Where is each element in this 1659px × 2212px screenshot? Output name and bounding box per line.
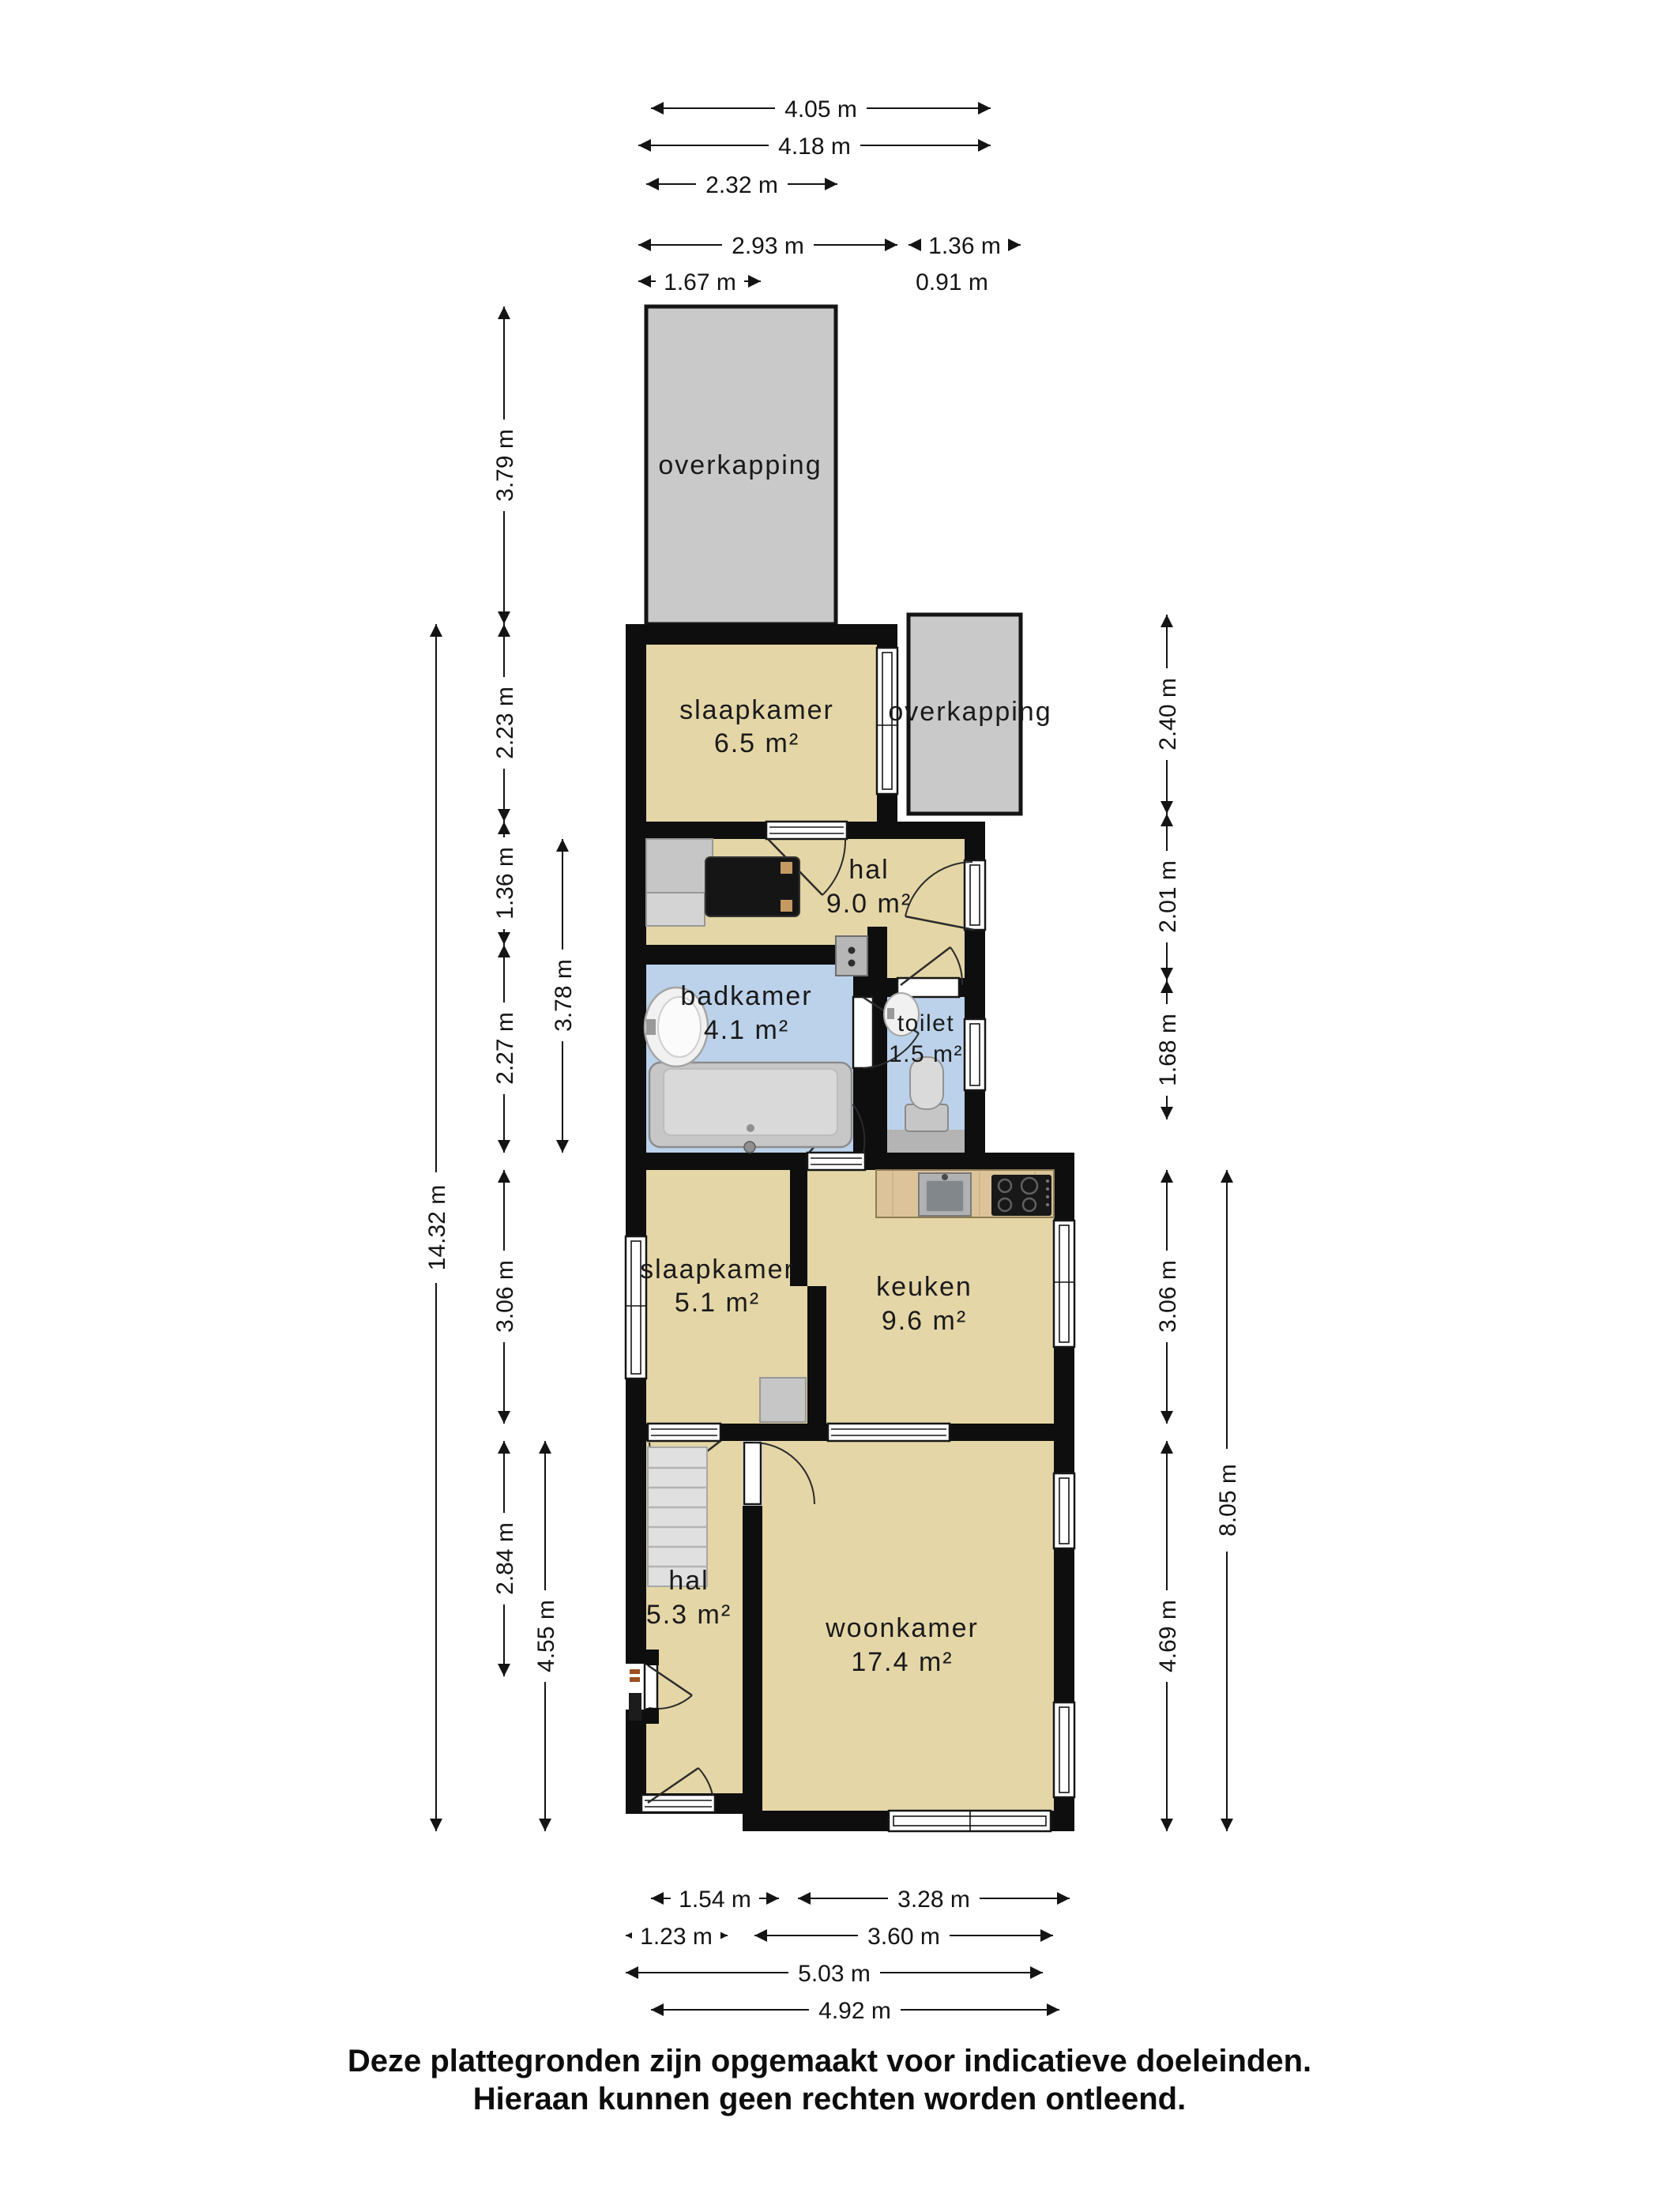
label-woonkamer-name: woonkamer [825,1613,979,1643]
svg-text:4.69 m: 4.69 m [1155,1600,1181,1672]
svg-text:3.28 m: 3.28 m [897,1887,970,1913]
dimensions-right: 2.40 m 2.01 m 1.68 m 3.06 m 8.05 m 4.69 … [1151,615,1243,1831]
floorplan-drawing: overkapping [0,0,1659,2212]
svg-text:4.05 m: 4.05 m [784,96,857,122]
window-woonkamer-right-2 [1054,1702,1074,1797]
cabinet-hal1-upper [646,839,713,893]
dim-bottom-6: 4.92 m [651,1994,1059,2026]
window-keuken-right [1054,1221,1074,1347]
svg-text:3.60 m: 3.60 m [867,1924,940,1950]
label-woonkamer-area: 17.4 m² [851,1647,953,1677]
label-hal1-area: 9.0 m² [826,889,912,919]
dimensions-top: 4.05 m 4.18 m 2.32 m 2.93 m 1.36 m 1.67 … [638,92,1021,297]
svg-text:1.36 m: 1.36 m [928,233,1001,259]
label-overkapping-right: overkapping [888,697,1051,727]
label-hal2-area: 5.3 m² [646,1600,732,1630]
svg-text:2.23 m: 2.23 m [492,687,518,759]
svg-text:14.32 m: 14.32 m [424,1185,450,1270]
dimensions-bottom: 1.54 m 3.28 m 1.23 m 3.60 m 5.03 m 4.92 … [626,1883,1070,2026]
door-jamb-top [646,1650,659,1665]
svg-text:4.18 m: 4.18 m [778,134,851,160]
overkapping-top: overkapping [646,307,836,624]
svg-text:1.23 m: 1.23 m [640,1924,713,1950]
dim-left-6: 14.32 m [420,624,452,1831]
footer: Deze plattegronden zijn opgemaakt voor i… [348,2044,1311,2116]
label-keuken-name: keuken [876,1272,972,1302]
dim-left-2: 2.23 m [488,624,520,822]
dim-top-3: 2.32 m [646,168,837,200]
footer-line-1: Deze plattegronden zijn opgemaakt voor i… [348,2044,1311,2078]
dim-bottom-3: 1.23 m [626,1920,728,1951]
dim-right-5: 8.05 m [1211,1170,1243,1831]
svg-text:0.91 m: 0.91 m [916,269,988,295]
cabinet-slaapkamer2 [760,1378,806,1422]
svg-text:1.68 m: 1.68 m [1155,1014,1181,1086]
boiler [836,936,867,976]
label-badkamer-name: badkamer [680,981,812,1011]
dim-left-7: 3.06 m [488,1170,520,1424]
svg-text:3.06 m: 3.06 m [1155,1260,1181,1333]
svg-text:3.06 m: 3.06 m [492,1260,518,1333]
svg-text:8.05 m: 8.05 m [1215,1464,1241,1537]
label-hal2-name: hal [668,1566,709,1596]
radiator-mark-1 [630,1669,640,1674]
dim-right-6: 4.69 m [1151,1441,1183,1831]
svg-text:1.67 m: 1.67 m [664,269,736,295]
cooktop [991,1175,1051,1216]
dim-right-4: 3.06 m [1151,1170,1183,1424]
overkapping-top-label: overkapping [658,450,822,480]
svg-text:2.84 m: 2.84 m [492,1522,518,1595]
svg-text:5.03 m: 5.03 m [798,1961,871,1987]
label-keuken-area: 9.6 m² [882,1306,967,1336]
dim-top-5: 1.36 m [908,229,1021,261]
svg-text:4.55 m: 4.55 m [533,1600,559,1672]
svg-text:3.78 m: 3.78 m [551,959,577,1032]
kitchen-counter [876,1170,1054,1217]
svg-text:4.92 m: 4.92 m [818,1998,891,2024]
boiler-dot-2 [848,960,856,967]
label-slaapkamer2-area: 5.1 m² [675,1288,760,1318]
opening-keuken-woonkamer [828,1424,950,1441]
boiler-dot-1 [848,947,856,954]
kitchen-sink [919,1173,971,1216]
label-toilet-area: 1.5 m² [889,1041,963,1067]
dim-bottom-5: 5.03 m [626,1957,1043,1988]
meter-cabinet [629,1693,641,1721]
svg-text:2.93 m: 2.93 m [732,233,804,259]
svg-text:2.01 m: 2.01 m [1155,860,1181,933]
bed-hal1 [705,857,799,916]
dim-bottom-1: 1.54 m [651,1883,779,1914]
floorplan-page: overkapping [0,0,1659,2212]
dim-right-1: 2.40 m [1151,615,1183,814]
dim-top-6: 1.67 m [638,265,761,297]
dim-left-5: 3.78 m [547,839,578,1153]
svg-text:2.27 m: 2.27 m [492,1012,518,1085]
svg-text:2.40 m: 2.40 m [1155,678,1181,750]
footer-line-2: Hieraan kunnen geen rechten worden ontle… [473,2082,1186,2116]
svg-text:3.79 m: 3.79 m [492,429,518,502]
window-toilet-right [965,1019,985,1090]
svg-text:2.32 m: 2.32 m [705,172,778,198]
label-toilet-name: toilet [897,1010,954,1036]
dim-left-8: 2.84 m [488,1441,520,1676]
label-badkamer-area: 4.1 m² [704,1015,789,1045]
label-slaapkamer2-name: slaapkamer [640,1255,795,1285]
window-woonkamer-right-1 [1054,1473,1074,1548]
label-slaapkamer1-name: slaapkamer [679,695,834,725]
bathtub [649,1063,852,1153]
dim-top-2: 4.18 m [638,130,991,161]
radiator-mark-2 [630,1677,640,1682]
dim-bottom-4: 3.60 m [754,1920,1053,1951]
dim-left-1: 3.79 m [488,307,520,624]
dim-top-4: 2.93 m [638,229,897,261]
dim-top-7: 0.91 m [916,269,988,295]
svg-text:1.54 m: 1.54 m [679,1887,751,1913]
svg-text:1.36 m: 1.36 m [492,847,518,920]
label-hal1-name: hal [848,855,889,885]
dim-right-2: 2.01 m [1151,814,1183,980]
dim-left-9: 4.55 m [529,1441,561,1831]
dim-top-1: 4.05 m [651,92,991,124]
dim-left-4: 2.27 m [488,945,520,1153]
door-jamb-bottom [646,1708,659,1724]
window-woonkamer-bottom [889,1811,1051,1831]
cabinet-hal1-lower [646,893,705,926]
dimensions-left: 3.79 m 2.23 m 1.36 m 2.27 m 3.78 m 14.32… [420,307,578,1831]
dim-right-3: 1.68 m [1151,980,1183,1119]
dim-bottom-2: 3.28 m [798,1883,1070,1914]
label-slaapkamer1-area: 6.5 m² [714,728,799,758]
dim-left-3: 1.36 m [488,822,520,945]
